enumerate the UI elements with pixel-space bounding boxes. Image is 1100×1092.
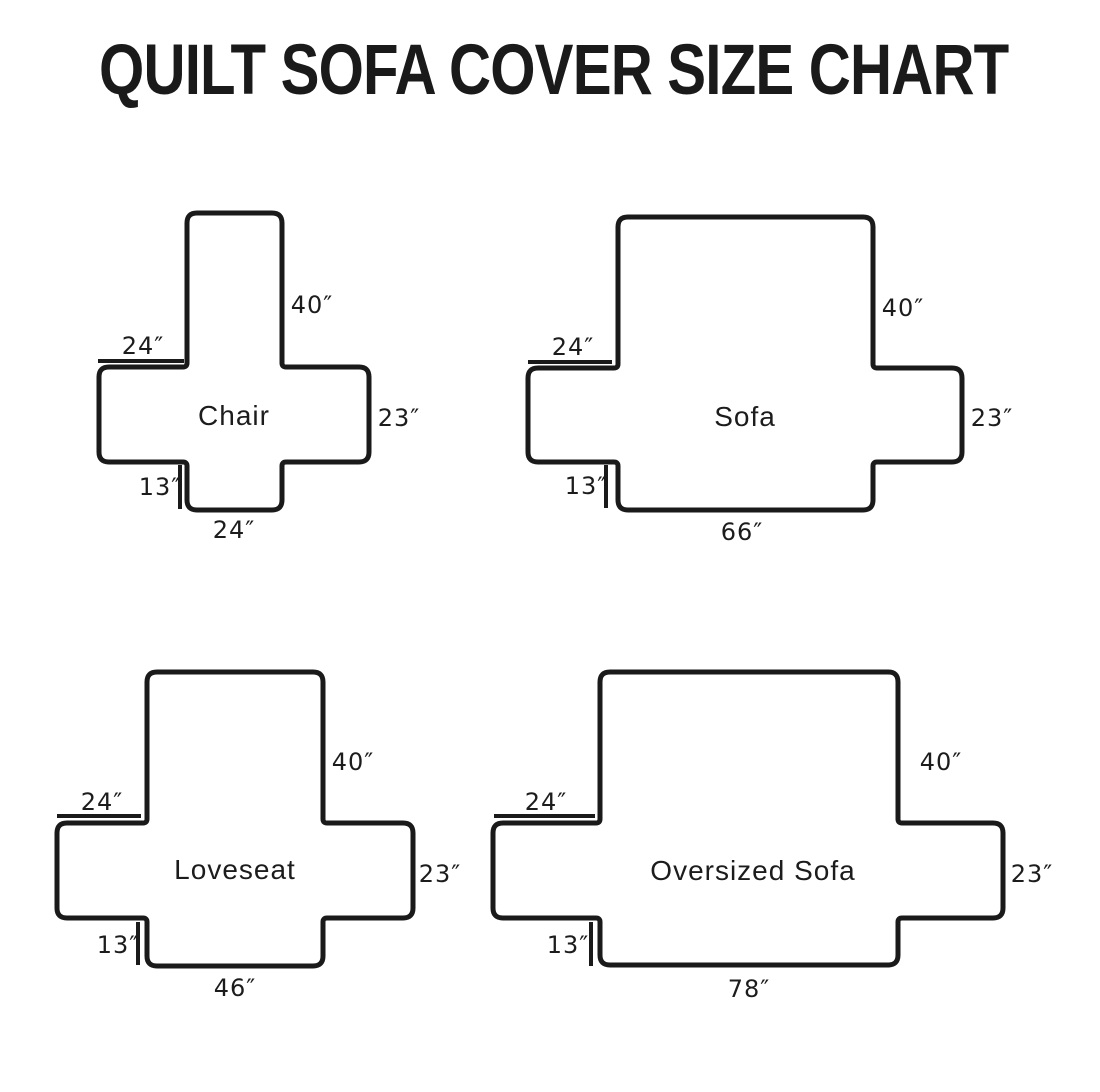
skirt-drop-label: 13″ <box>139 475 182 499</box>
sofa-shape <box>528 217 962 510</box>
size-chart: QUILT SOFA COVER SIZE CHART 40″ <box>0 0 1100 1092</box>
oversized-sofa-cover-outline <box>493 672 1003 965</box>
back-height-label: 40″ <box>291 293 334 317</box>
arm-width-label: 24″ <box>81 790 124 814</box>
arm-width-label: 24″ <box>122 334 165 358</box>
arm-width-label: 24″ <box>552 335 595 359</box>
diagrams-canvas <box>0 0 1100 1092</box>
loveseat-cover-outline <box>57 672 413 966</box>
side-height-label: 23″ <box>971 406 1014 430</box>
skirt-drop-label: 13″ <box>547 933 590 957</box>
side-height-label: 23″ <box>419 862 462 886</box>
side-height-label: 23″ <box>378 406 421 430</box>
loveseat-shape <box>57 672 413 966</box>
bottom-width-label: 24″ <box>213 518 256 542</box>
oversized-sofa-shape <box>493 672 1003 966</box>
bottom-width-label: 66″ <box>721 520 764 544</box>
bottom-width-label: 46″ <box>214 976 257 1000</box>
back-height-label: 40″ <box>332 750 375 774</box>
skirt-drop-label: 13″ <box>565 474 608 498</box>
side-height-label: 23″ <box>1011 862 1054 886</box>
back-height-label: 40″ <box>920 750 963 774</box>
cover-name-label: Loveseat <box>174 856 296 884</box>
cover-name-label: Sofa <box>714 403 776 431</box>
skirt-drop-label: 13″ <box>97 933 140 957</box>
back-height-label: 40″ <box>882 296 925 320</box>
chair-shape <box>98 213 369 510</box>
cover-name-label: Oversized Sofa <box>650 857 855 885</box>
cover-name-label: Chair <box>198 402 270 430</box>
bottom-width-label: 78″ <box>728 977 771 1001</box>
arm-width-label: 24″ <box>525 790 568 814</box>
